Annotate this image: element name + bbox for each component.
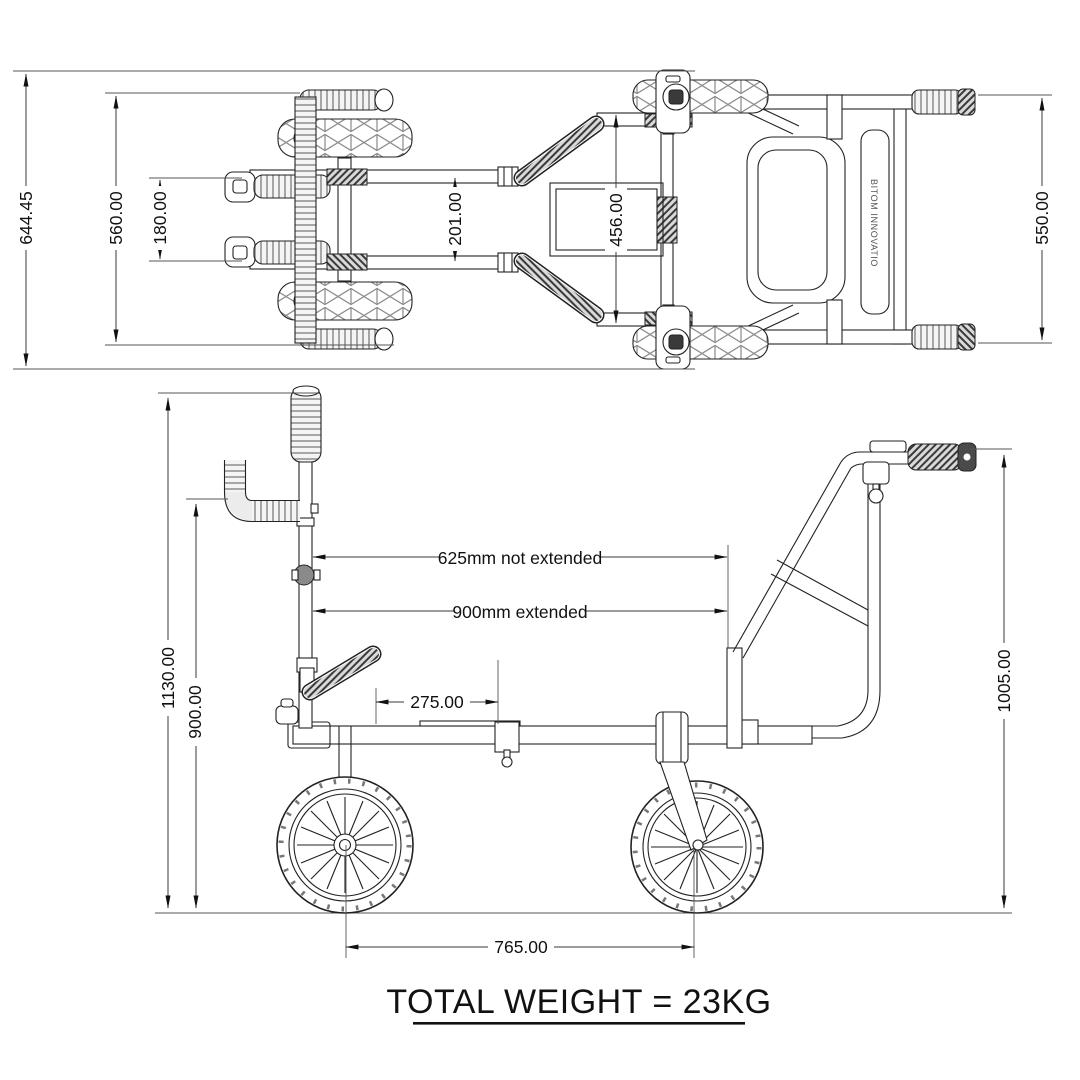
tow-pole-plan	[295, 97, 316, 343]
dim-body-width: 550.00	[1032, 191, 1052, 245]
top-view: BITOM INNOVATIO 644.45 560.00	[13, 70, 1053, 369]
dim-overall-width: 644.45	[16, 191, 36, 245]
caster-housing	[656, 712, 688, 764]
side-view: 1130.00 900.00 1005.00 625mm not extende…	[155, 386, 1015, 958]
brand-label: BITOM INNOVATIO	[869, 179, 879, 267]
title-underline	[413, 1022, 745, 1025]
title-block: TOTAL WEIGHT = 23KG	[386, 983, 771, 1025]
dim-pole-retracted: 625mm not extended	[438, 548, 602, 568]
front-knob	[276, 699, 298, 724]
kick-lever	[297, 654, 373, 692]
dim-track-width: 560.00	[106, 191, 126, 245]
cad-sheet: BITOM INNOVATIO 644.45 560.00	[0, 0, 1080, 1080]
left-wheel	[277, 726, 413, 913]
dim-pole-extended: 900mm extended	[452, 602, 587, 622]
handle-clamp	[863, 462, 889, 484]
dim-rail-spacing: 201.00	[445, 192, 465, 246]
tow-pole-clamp	[657, 197, 677, 243]
dim-overall-height: 1130.00	[158, 647, 178, 709]
pole-grip	[291, 388, 321, 462]
dim-lever-offset: 275.00	[410, 692, 464, 712]
dim-grip-spacing: 180.00	[150, 191, 170, 245]
total-weight-title: TOTAL WEIGHT = 23KG	[386, 983, 771, 1021]
coiled-hose	[225, 460, 301, 522]
cart-bed-outer	[747, 137, 845, 303]
push-handle-grip	[908, 444, 962, 470]
rear-frame	[727, 441, 976, 748]
dim-frame-width: 456.00	[606, 193, 626, 247]
dim-handle-height: 900.00	[185, 685, 205, 739]
dim-wheelbase: 765.00	[494, 937, 548, 957]
technical-drawing: BITOM INNOVATIO 644.45 560.00	[0, 0, 1080, 1080]
rear-cross-bar	[894, 96, 906, 344]
dim-push-handle-height: 1005.00	[994, 649, 1014, 713]
